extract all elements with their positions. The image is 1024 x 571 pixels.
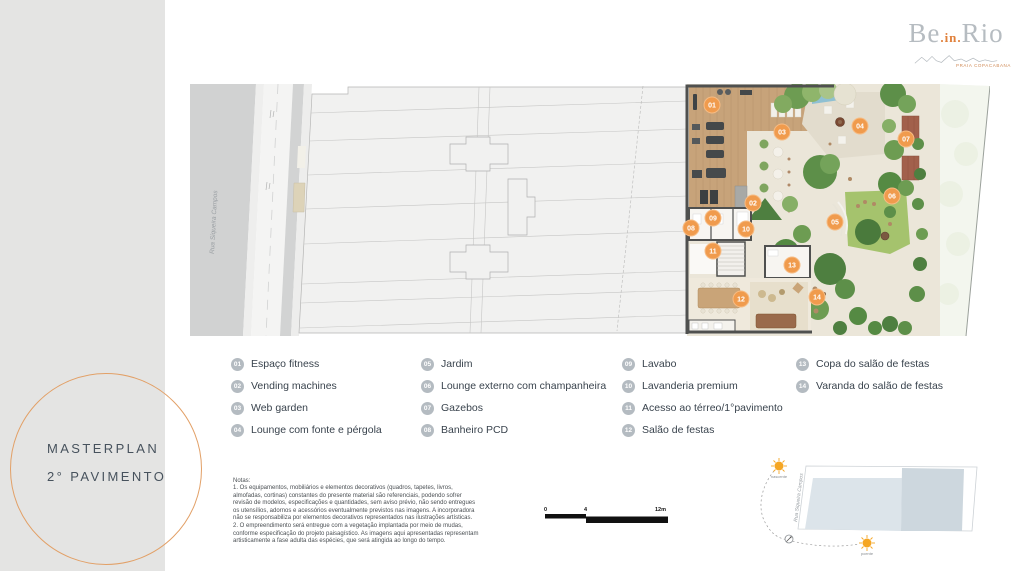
notes-block: Notas: 1. Os equipamentos, mobiliários e… — [233, 477, 503, 546]
note-line: almofadas, cortinas) constantes do prese… — [233, 493, 503, 501]
plan-marker-07: 07 — [898, 131, 914, 147]
legend-label: Vending machines — [251, 380, 337, 392]
plan-marker-13: 13 — [784, 257, 800, 273]
legend-item-11: 11Acesso ao térreo/1°pavimento — [622, 397, 783, 419]
legend-column-1: 01Espaço fitness02Vending machines03Web … — [231, 353, 382, 441]
legend-label: Acesso ao térreo/1°pavimento — [642, 402, 783, 414]
svg-text:07: 07 — [902, 137, 910, 144]
plan-marker-14: 14 — [809, 289, 825, 305]
svg-text:10: 10 — [742, 227, 750, 234]
note-line: os utensílios, adornos e acessórios even… — [233, 508, 503, 516]
page-title-line2: 2° PAVIMENTO — [47, 463, 166, 491]
legend-number-badge: 14 — [796, 380, 809, 393]
plan-marker-06: 06 — [884, 188, 900, 204]
legend-label: Lounge externo com champanheira — [441, 380, 606, 392]
legend-column-2: 05Jardim06Lounge externo com champanheir… — [421, 353, 606, 441]
legend-item-14: 14Varanda do salão de festas — [796, 375, 943, 397]
legend-number-badge: 12 — [622, 424, 635, 437]
note-line: 2. O empreendimento será entregue com a … — [233, 523, 503, 531]
street-area: Rua Siqueira Campos — [190, 84, 312, 336]
legend-label: Lavanderia premium — [642, 380, 738, 392]
plan-marker-11: 11 — [705, 243, 721, 259]
legend-label: Varanda do salão de festas — [816, 380, 943, 392]
scale-end-label: 12m — [655, 507, 666, 513]
legend-number-badge: 09 — [622, 358, 635, 371]
plan-marker-05: 05 — [827, 214, 843, 230]
svg-text:03: 03 — [778, 130, 786, 137]
plan-marker-08: 08 — [683, 220, 699, 236]
svg-text:13: 13 — [788, 263, 796, 270]
legend-number-badge: 02 — [231, 380, 244, 393]
notes-title: Notas: — [233, 477, 503, 485]
legend-item-06: 06Lounge externo com champanheira — [421, 375, 606, 397]
legend-label: Gazebos — [441, 402, 483, 414]
masterplan-page: MASTERPLAN 2° PAVIMENTO Be.in.Rio PRAIA … — [0, 0, 1024, 571]
neighbor-lot — [937, 84, 990, 336]
legend-number-badge: 07 — [421, 402, 434, 415]
plan-marker-12: 12 — [733, 291, 749, 307]
logo-word-be: Be — [908, 18, 940, 48]
legend-column-3: 09Lavabo10Lavanderia premium11Acesso ao … — [622, 353, 783, 441]
svg-text:04: 04 — [856, 124, 864, 131]
plan-marker-10: 10 — [738, 221, 754, 237]
compass-icon — [785, 535, 793, 543]
legend-label: Copa do salão de festas — [816, 358, 929, 370]
legend-number-badge: 05 — [421, 358, 434, 371]
scale-zero-label: 0 — [544, 507, 547, 513]
legend-number-badge: 04 — [231, 424, 244, 437]
svg-text:08: 08 — [687, 226, 695, 233]
legend-number-badge: 11 — [622, 402, 635, 415]
note-line: revisão de modelos, especificações e qua… — [233, 500, 503, 508]
legend-number-badge: 06 — [421, 380, 434, 393]
sunrise-label: nascente — [771, 474, 788, 479]
svg-text:06: 06 — [888, 194, 896, 201]
masterplan-graphic: Rua Siqueira Campos — [190, 84, 990, 336]
legend-item-04: 04Lounge com fonte e pérgola — [231, 419, 382, 441]
legend-number-badge: 13 — [796, 358, 809, 371]
legend-label: Web garden — [251, 402, 308, 414]
plan-marker-03: 03 — [774, 124, 790, 140]
svg-text:12: 12 — [737, 297, 745, 304]
legend-item-07: 07Gazebos — [421, 397, 606, 419]
svg-text:05: 05 — [831, 220, 839, 227]
brand-logo: Be.in.Rio PRAIA COPACABANA — [897, 18, 1015, 68]
legend-item-13: 13Copa do salão de festas — [796, 353, 943, 375]
building-footprint — [299, 86, 687, 333]
note-line: conforme especificação do projeto paisag… — [233, 531, 503, 539]
plan-marker-09: 09 — [705, 210, 721, 226]
notes-lines: 1. Os equipamentos, mobiliários e elemen… — [233, 485, 503, 546]
sunset-label: poente — [861, 551, 874, 556]
logo-tagline: PRAIA COPACABANA — [897, 63, 1015, 68]
legend-item-03: 03Web garden — [231, 397, 382, 419]
legend-item-02: 02Vending machines — [231, 375, 382, 397]
legend-column-4: 13Copa do salão de festas14Varanda do sa… — [796, 353, 943, 397]
sunset-sun-icon — [859, 535, 875, 551]
sun-path-diagram: Rua Siqueira Campos nascente — [758, 440, 1013, 570]
legend-label: Espaço fitness — [251, 358, 319, 370]
logo-word-rio: Rio — [962, 18, 1004, 48]
page-title: MASTERPLAN 2° PAVIMENTO — [47, 435, 166, 491]
legend-item-05: 05Jardim — [421, 353, 606, 375]
note-line: artisticamente a fase adulta das espécie… — [233, 538, 503, 546]
plan-marker-01: 01 — [704, 97, 720, 113]
legend-item-09: 09Lavabo — [622, 353, 783, 375]
legend-label: Jardim — [441, 358, 473, 370]
legend-number-badge: 08 — [421, 424, 434, 437]
plan-marker-02: 02 — [745, 195, 761, 211]
legend-item-12: 12Salão de festas — [622, 419, 783, 441]
legend-item-08: 08Banheiro PCD — [421, 419, 606, 441]
legend-label: Lavabo — [642, 358, 676, 370]
brand-logo-text: Be.in.Rio — [897, 18, 1015, 53]
svg-text:11: 11 — [709, 249, 717, 256]
svg-text:02: 02 — [749, 201, 757, 208]
plan-marker-04: 04 — [852, 118, 868, 134]
svg-text:09: 09 — [709, 216, 717, 223]
legend-number-badge: 01 — [231, 358, 244, 371]
legend-item-10: 10Lavanderia premium — [622, 375, 783, 397]
logo-word-in: .in. — [940, 30, 961, 45]
legend-label: Salão de festas — [642, 424, 714, 436]
note-line: 1. Os equipamentos, mobiliários e elemen… — [233, 485, 503, 493]
legend-label: Banheiro PCD — [441, 424, 508, 436]
legend-number-badge: 10 — [622, 380, 635, 393]
legend-item-01: 01Espaço fitness — [231, 353, 382, 375]
legend-label: Lounge com fonte e pérgola — [251, 424, 382, 436]
legend-number-badge: 03 — [231, 402, 244, 415]
note-line: não se responsabiliza por elementos deco… — [233, 515, 503, 523]
scale-mid-label: 4 — [584, 507, 588, 513]
scale-bar: 0 4 12m — [543, 504, 675, 530]
svg-text:01: 01 — [708, 103, 716, 110]
page-title-line1: MASTERPLAN — [47, 435, 166, 463]
svg-text:14: 14 — [813, 295, 821, 302]
